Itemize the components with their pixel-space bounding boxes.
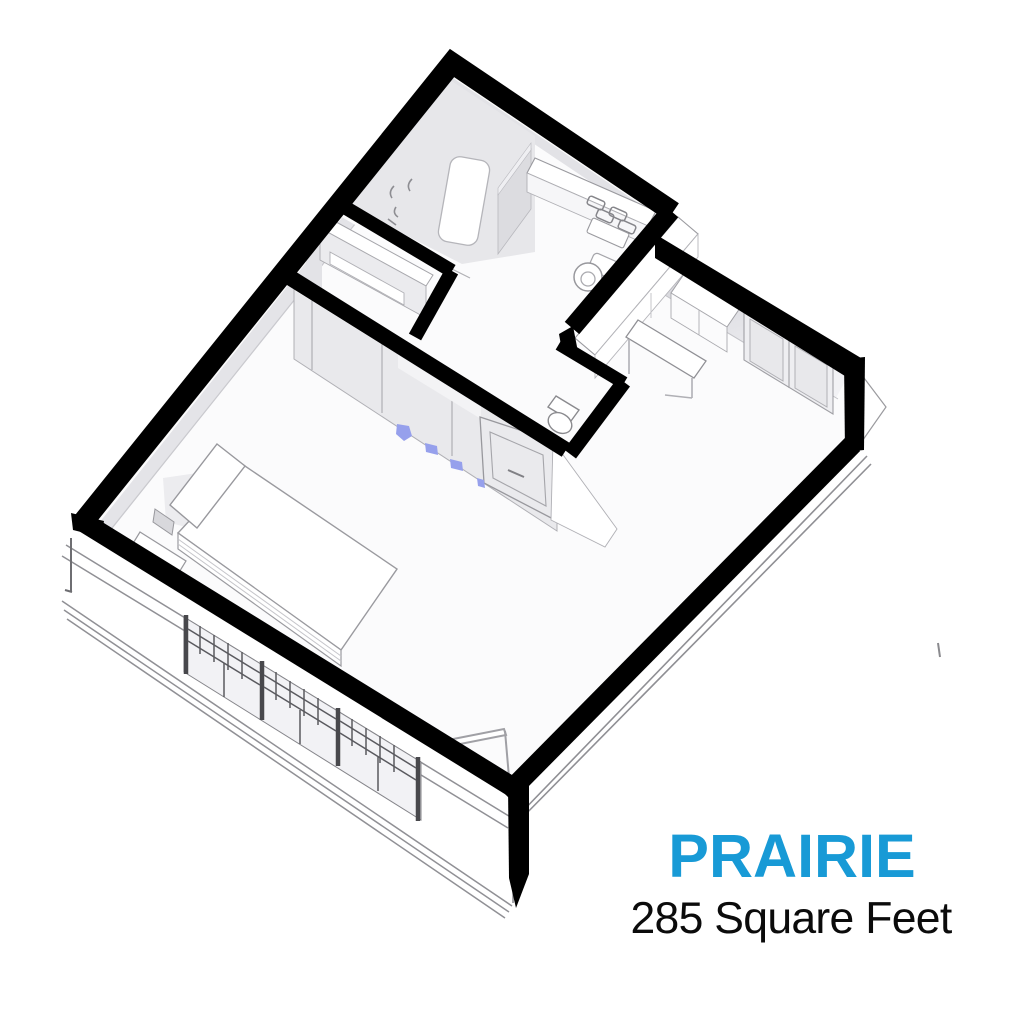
svg-text:285 Square Feet: 285 Square Feet <box>630 894 952 943</box>
svg-text:PRAIRIE: PRAIRIE <box>668 822 915 890</box>
